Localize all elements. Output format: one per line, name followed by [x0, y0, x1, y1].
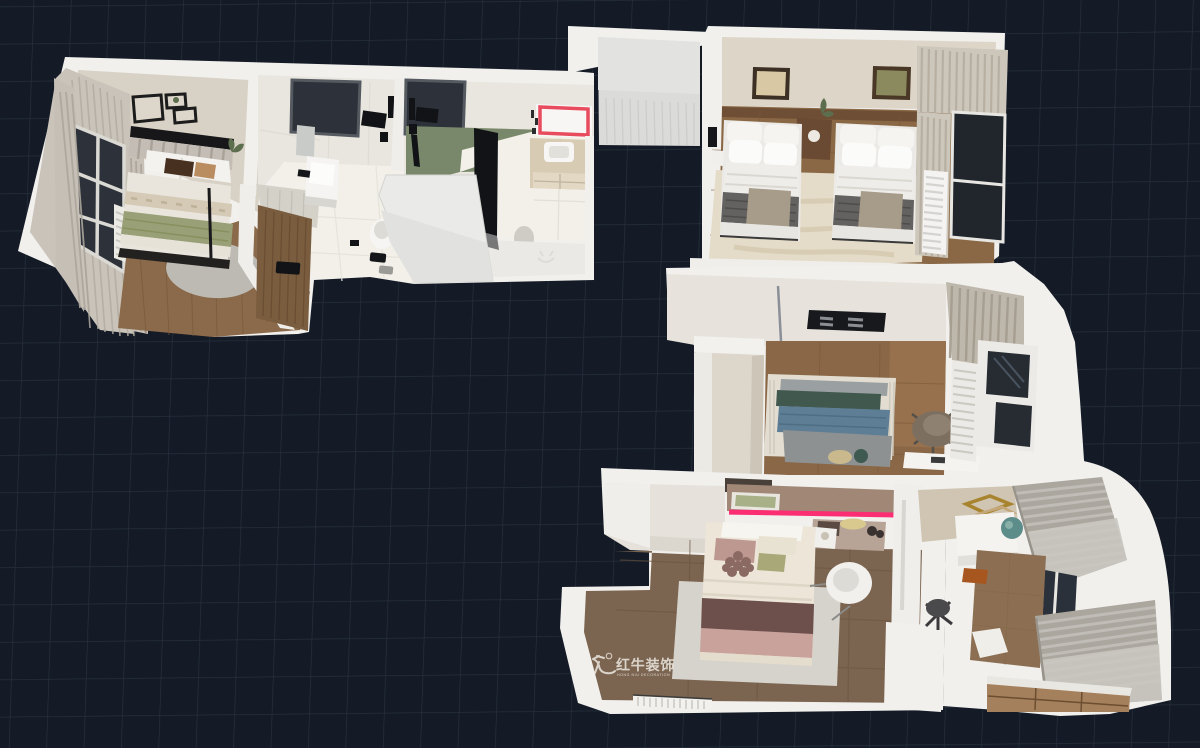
svg-text:红牛装饰: 红牛装饰	[616, 657, 675, 673]
svg-text:HONG NIU DECORATION: HONG NIU DECORATION	[617, 673, 670, 677]
